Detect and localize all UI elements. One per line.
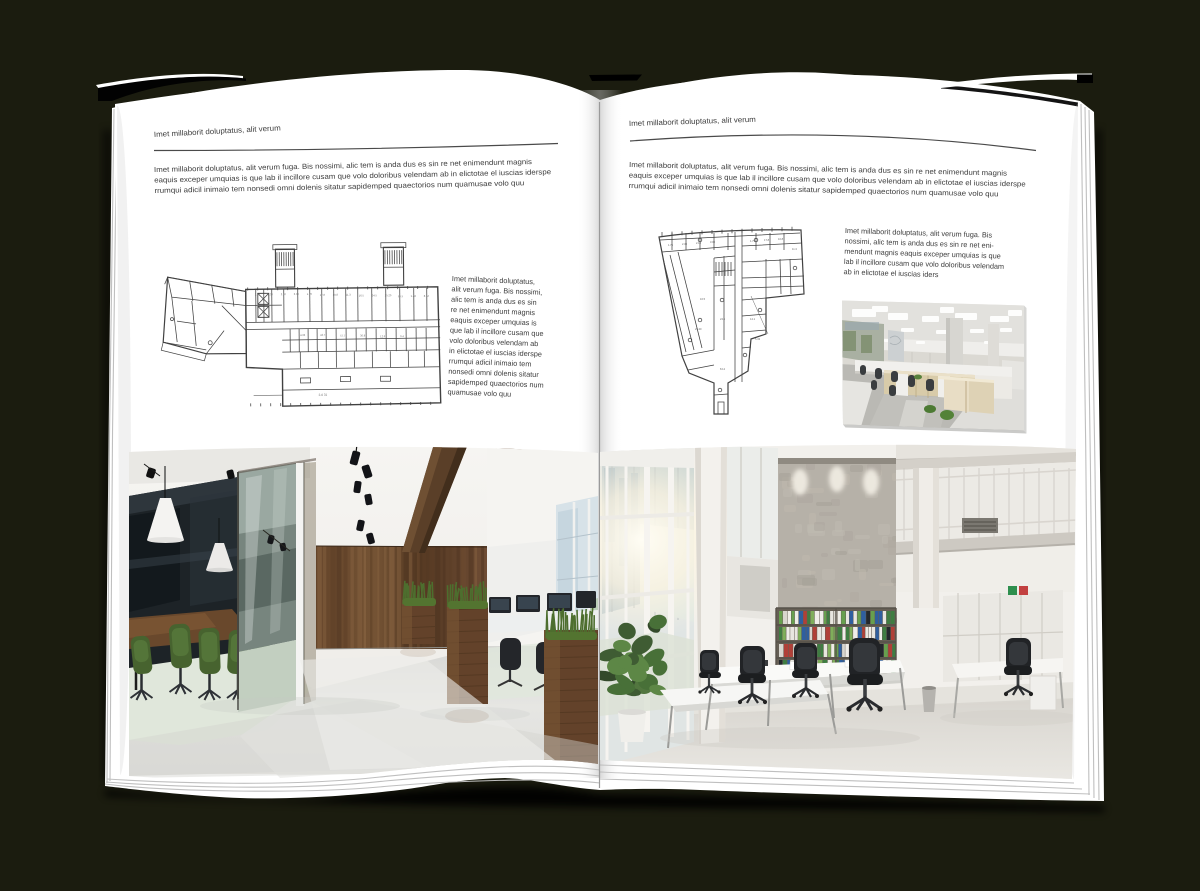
- svg-text:57.7: 57.7: [340, 334, 346, 338]
- svg-text:25.20: 25.20: [695, 327, 702, 331]
- svg-text:25.20: 25.20: [385, 293, 392, 297]
- svg-text:2.30: 2.30: [268, 292, 274, 296]
- svg-text:11.3: 11.3: [792, 247, 797, 251]
- svg-text:16.5: 16.5: [359, 293, 365, 297]
- svg-text:14.1: 14.1: [398, 294, 404, 298]
- svg-text:8.12: 8.12: [720, 367, 726, 371]
- svg-text:24.5: 24.5: [720, 317, 726, 321]
- svg-text:10.8: 10.8: [778, 237, 784, 241]
- svg-text:2.10: 2.10: [696, 241, 702, 245]
- svg-text:17.8: 17.8: [764, 238, 770, 242]
- svg-text:24.5: 24.5: [372, 293, 378, 297]
- svg-text:10.8: 10.8: [333, 293, 339, 297]
- svg-text:4.33: 4.33: [300, 333, 306, 337]
- svg-text:8.12: 8.12: [424, 294, 430, 298]
- svg-text:17.8: 17.8: [320, 293, 326, 297]
- svg-text:1.79: 1.79: [750, 239, 756, 243]
- svg-text:5.43: 5.43: [411, 294, 417, 298]
- svg-text:30.8: 30.8: [360, 333, 366, 337]
- svg-text:1.79: 1.79: [307, 292, 313, 296]
- svg-text:3.00: 3.00: [710, 240, 716, 244]
- svg-text:5.43: 5.43: [755, 337, 761, 341]
- svg-text:16.5: 16.5: [700, 297, 706, 301]
- svg-text:3.00: 3.00: [294, 292, 300, 296]
- svg-text:2-0 31: 2-0 31: [319, 393, 328, 397]
- svg-text:12.6: 12.6: [380, 334, 386, 338]
- svg-text:2.10: 2.10: [281, 292, 287, 296]
- svg-text:1.75: 1.75: [255, 292, 261, 296]
- svg-text:42.7: 42.7: [320, 333, 326, 337]
- svg-text:1.75: 1.75: [668, 243, 674, 247]
- svg-text:11.3: 11.3: [346, 293, 351, 297]
- svg-text:9.4: 9.4: [400, 334, 404, 338]
- svg-text:14.1: 14.1: [750, 317, 756, 321]
- svg-text:2.30: 2.30: [682, 242, 688, 246]
